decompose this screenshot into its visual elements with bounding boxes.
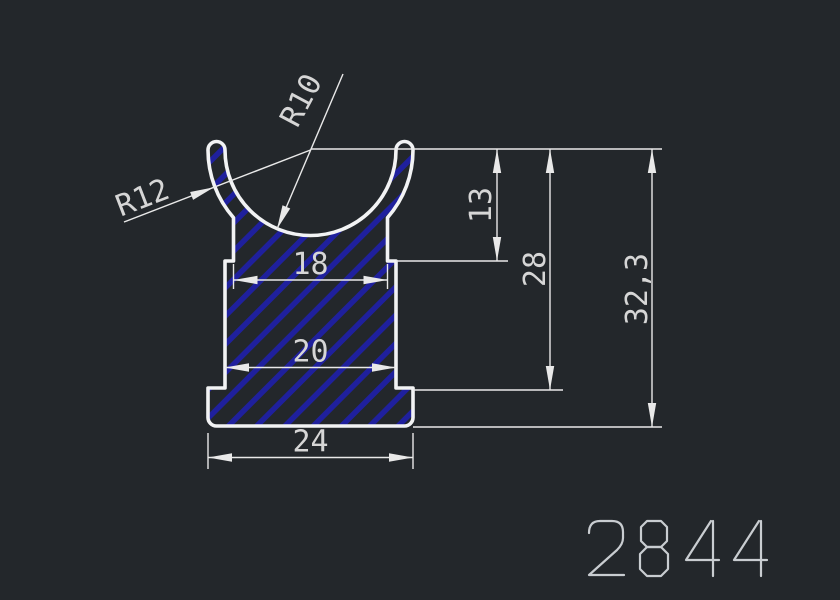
dim-label-width-bottom: 24	[292, 425, 328, 460]
dim-label-height-total: 32,3	[620, 253, 655, 325]
dim-label-width-middle: 20	[292, 335, 328, 370]
dim-label-width-top: 18	[292, 247, 328, 282]
cad-drawing-canvas: 18 20 24 13 28 32,3 R10	[0, 0, 840, 600]
dim-label-height-body: 28	[518, 251, 553, 287]
dim-label-height-step: 13	[464, 187, 499, 223]
cad-drawing-viewport[interactable]: 18 20 24 13 28 32,3 R10	[0, 0, 840, 600]
drawing-background	[0, 0, 840, 600]
